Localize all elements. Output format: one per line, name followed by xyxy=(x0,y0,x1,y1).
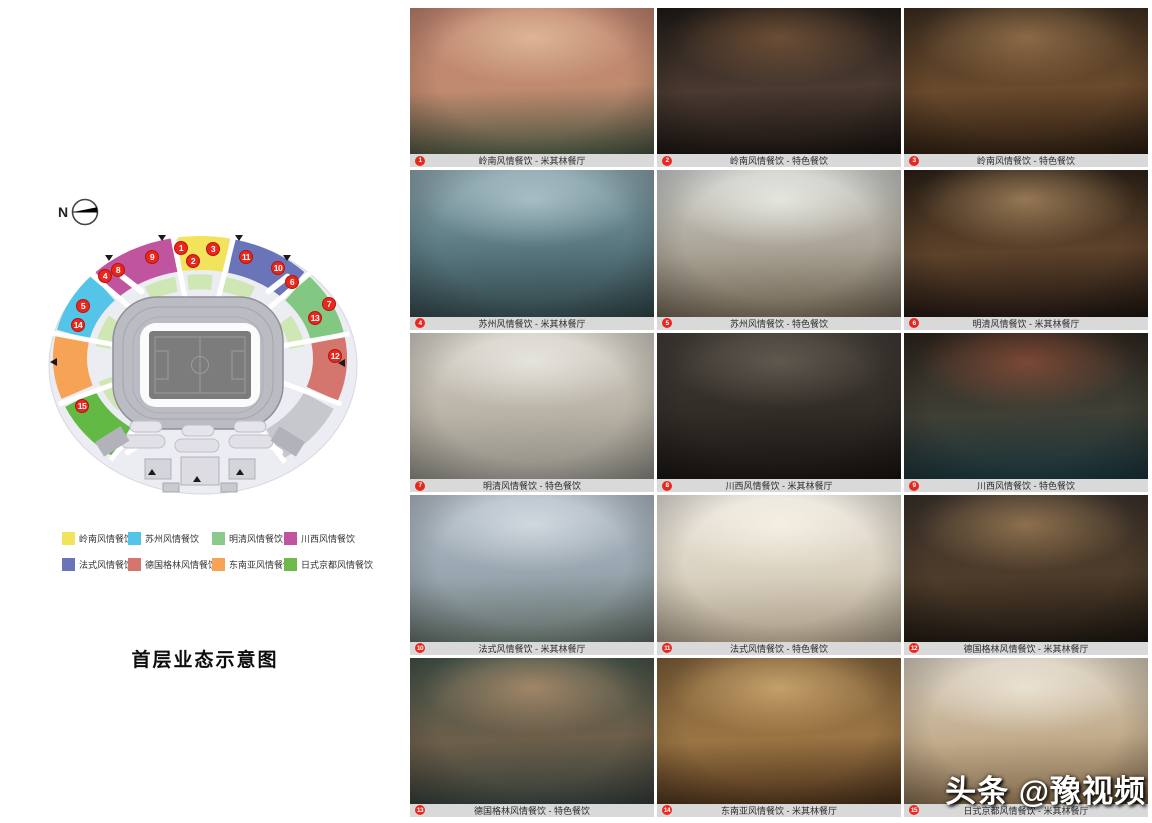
map-number-badge: 15 xyxy=(75,399,89,413)
legend-label: 日式京都风情餐饮 xyxy=(301,558,373,571)
photo-caption-bar: 4苏州风情餐饮 - 米其林餐厅 xyxy=(410,317,654,330)
legend: 岭南风情餐饮苏州风情餐饮明清风情餐饮川西风情餐饮法式风情餐饮德国格林风情餐饮东南… xyxy=(62,532,384,571)
caption-number-badge: 7 xyxy=(415,481,425,491)
caption-number-badge: 4 xyxy=(415,318,425,328)
legend-item: 苏州风情餐饮 xyxy=(128,532,212,545)
map-number-badge: 14 xyxy=(71,318,85,332)
photo-cell: 11法式风情餐饮 - 特色餐饮 xyxy=(657,495,901,654)
caption-number-badge: 13 xyxy=(415,805,425,815)
legend-item: 东南亚风情餐饮 xyxy=(212,558,284,571)
infographic-canvas: N xyxy=(0,0,1152,823)
photo-caption-bar: 5苏州风情餐饮 - 特色餐饮 xyxy=(657,317,901,330)
map-number-badge: 9 xyxy=(145,250,159,264)
restaurant-photo xyxy=(657,333,901,479)
caption-text: 法式风情餐饮 - 特色餐饮 xyxy=(730,642,828,655)
photo-caption-bar: 9川西风情餐饮 - 特色餐饮 xyxy=(904,479,1148,492)
caption-text: 岭南风情餐饮 - 特色餐饮 xyxy=(730,154,828,167)
map-number-badge: 5 xyxy=(76,299,90,313)
caption-text: 东南亚风情餐饮 - 米其林餐厅 xyxy=(721,804,837,817)
legend-label: 苏州风情餐饮 xyxy=(145,532,199,545)
photo-caption-bar: 6明清风情餐饮 - 米其林餐厅 xyxy=(904,317,1148,330)
photo-caption-bar: 13德国格林风情餐饮 - 特色餐饮 xyxy=(410,804,654,817)
photo-caption-bar: 11法式风情餐饮 - 特色餐饮 xyxy=(657,642,901,655)
caption-text: 明清风情餐饮 - 米其林餐厅 xyxy=(973,317,1080,330)
caption-number-badge: 3 xyxy=(909,156,919,166)
caption-text: 苏州风情餐饮 - 特色餐饮 xyxy=(730,317,828,330)
photo-caption-bar: 7明清风情餐饮 - 特色餐饮 xyxy=(410,479,654,492)
map-badges-layer: 123456789101112131415 xyxy=(45,225,365,515)
legend-label: 岭南风情餐饮 xyxy=(79,532,133,545)
legend-color-swatch xyxy=(212,558,225,571)
legend-item: 法式风情餐饮 xyxy=(62,558,128,571)
caption-text: 德国格林风情餐饮 - 特色餐饮 xyxy=(474,804,590,817)
map-number-badge: 2 xyxy=(186,254,200,268)
legend-color-swatch xyxy=(284,532,297,545)
caption-number-badge: 11 xyxy=(662,643,672,653)
page-title: 首层业态示意图 xyxy=(45,645,365,672)
compass-icon xyxy=(70,197,100,227)
caption-text: 德国格林风情餐饮 - 米其林餐厅 xyxy=(964,642,1089,655)
legend-color-swatch xyxy=(212,532,225,545)
caption-number-badge: 1 xyxy=(415,156,425,166)
restaurant-photo xyxy=(410,333,654,479)
watermark: 头条 @豫视频 xyxy=(945,766,1146,811)
legend-color-swatch xyxy=(128,558,141,571)
photo-cell: 13德国格林风情餐饮 - 特色餐饮 xyxy=(410,658,654,817)
caption-text: 川西风情餐饮 - 特色餐饮 xyxy=(977,479,1075,492)
photo-cell: 6明清风情餐饮 - 米其林餐厅 xyxy=(904,170,1148,329)
caption-number-badge: 8 xyxy=(662,481,672,491)
caption-text: 法式风情餐饮 - 米其林餐厅 xyxy=(479,642,586,655)
legend-color-swatch xyxy=(128,532,141,545)
restaurant-photo xyxy=(904,495,1148,641)
map-number-badge: 1 xyxy=(174,241,188,255)
photo-cell: 12德国格林风情餐饮 - 米其林餐厅 xyxy=(904,495,1148,654)
north-label: N xyxy=(58,204,68,220)
photo-caption-bar: 3岭南风情餐饮 - 特色餐饮 xyxy=(904,154,1148,167)
photo-caption-bar: 8川西风情餐饮 - 米其林餐厅 xyxy=(657,479,901,492)
caption-text: 川西风情餐饮 - 米其林餐厅 xyxy=(726,479,833,492)
restaurant-photo xyxy=(657,8,901,154)
restaurant-photo xyxy=(410,658,654,804)
map-number-badge: 4 xyxy=(98,269,112,283)
restaurant-photo xyxy=(657,495,901,641)
photo-caption-bar: 1岭南风情餐饮 - 米其林餐厅 xyxy=(410,154,654,167)
caption-number-badge: 14 xyxy=(662,805,672,815)
legend-color-swatch xyxy=(62,532,75,545)
north-arrow: N xyxy=(58,197,100,227)
legend-color-swatch xyxy=(284,558,297,571)
map-number-badge: 13 xyxy=(308,311,322,325)
caption-number-badge: 15 xyxy=(909,805,919,815)
stadium-floor-plan: 123456789101112131415 xyxy=(45,225,365,515)
caption-text: 岭南风情餐饮 - 特色餐饮 xyxy=(977,154,1075,167)
legend-item: 岭南风情餐饮 xyxy=(62,532,128,545)
restaurant-photo xyxy=(410,170,654,316)
photo-cell: 7明清风情餐饮 - 特色餐饮 xyxy=(410,333,654,492)
restaurant-photo xyxy=(410,495,654,641)
legend-label: 法式风情餐饮 xyxy=(79,558,133,571)
caption-text: 明清风情餐饮 - 特色餐饮 xyxy=(483,479,581,492)
caption-number-badge: 9 xyxy=(909,481,919,491)
legend-color-swatch xyxy=(62,558,75,571)
photo-caption-bar: 10法式风情餐饮 - 米其林餐厅 xyxy=(410,642,654,655)
legend-item: 川西风情餐饮 xyxy=(284,532,384,545)
photo-cell: 5苏州风情餐饮 - 特色餐饮 xyxy=(657,170,901,329)
map-number-badge: 7 xyxy=(322,297,336,311)
restaurant-photo xyxy=(657,658,901,804)
photo-cell: 2岭南风情餐饮 - 特色餐饮 xyxy=(657,8,901,167)
restaurant-photo xyxy=(657,170,901,316)
caption-text: 苏州风情餐饮 - 米其林餐厅 xyxy=(479,317,586,330)
photo-cell: 14东南亚风情餐饮 - 米其林餐厅 xyxy=(657,658,901,817)
legend-label: 川西风情餐饮 xyxy=(301,532,355,545)
caption-number-badge: 6 xyxy=(909,318,919,328)
photo-caption-bar: 12德国格林风情餐饮 - 米其林餐厅 xyxy=(904,642,1148,655)
map-number-badge: 11 xyxy=(239,250,253,264)
restaurant-photo xyxy=(904,8,1148,154)
legend-label: 明清风情餐饮 xyxy=(229,532,283,545)
map-number-badge: 12 xyxy=(328,349,342,363)
photo-cell: 3岭南风情餐饮 - 特色餐饮 xyxy=(904,8,1148,167)
restaurant-photo xyxy=(410,8,654,154)
photo-gallery: 1岭南风情餐饮 - 米其林餐厅2岭南风情餐饮 - 特色餐饮3岭南风情餐饮 - 特… xyxy=(410,8,1148,817)
legend-label: 德国格林风情餐饮 xyxy=(145,558,217,571)
legend-item: 日式京都风情餐饮 xyxy=(284,558,384,571)
restaurant-photo xyxy=(904,170,1148,316)
map-number-badge: 6 xyxy=(285,275,299,289)
restaurant-photo xyxy=(904,333,1148,479)
caption-number-badge: 12 xyxy=(909,643,919,653)
photo-cell: 1岭南风情餐饮 - 米其林餐厅 xyxy=(410,8,654,167)
caption-number-badge: 10 xyxy=(415,643,425,653)
legend-item: 德国格林风情餐饮 xyxy=(128,558,212,571)
legend-item: 明清风情餐饮 xyxy=(212,532,284,545)
map-number-badge: 10 xyxy=(271,261,285,275)
photo-caption-bar: 14东南亚风情餐饮 - 米其林餐厅 xyxy=(657,804,901,817)
caption-text: 岭南风情餐饮 - 米其林餐厅 xyxy=(479,154,586,167)
legend-label: 东南亚风情餐饮 xyxy=(229,558,292,571)
photo-cell: 9川西风情餐饮 - 特色餐饮 xyxy=(904,333,1148,492)
caption-number-badge: 5 xyxy=(662,318,672,328)
photo-cell: 10法式风情餐饮 - 米其林餐厅 xyxy=(410,495,654,654)
map-number-badge: 8 xyxy=(111,263,125,277)
photo-cell: 4苏州风情餐饮 - 米其林餐厅 xyxy=(410,170,654,329)
photo-cell: 8川西风情餐饮 - 米其林餐厅 xyxy=(657,333,901,492)
photo-caption-bar: 2岭南风情餐饮 - 特色餐饮 xyxy=(657,154,901,167)
map-number-badge: 3 xyxy=(206,242,220,256)
caption-number-badge: 2 xyxy=(662,156,672,166)
